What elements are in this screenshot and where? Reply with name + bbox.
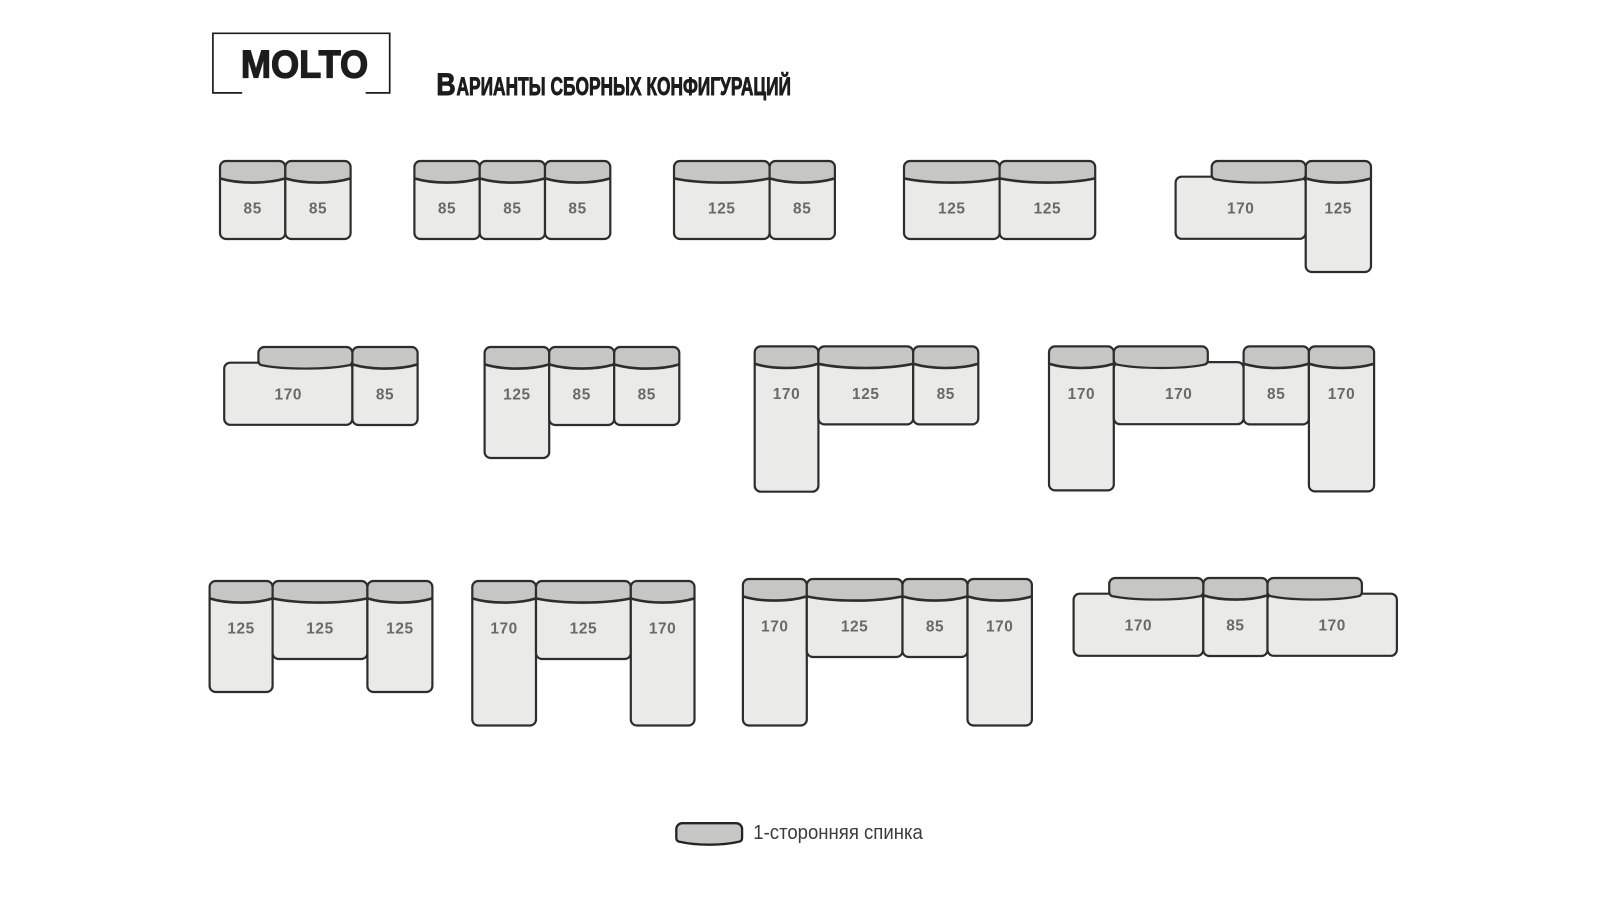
svg-text:125: 125 — [570, 621, 597, 638]
svg-text:1-сторонняя спинка: 1-сторонняя спинка — [753, 821, 923, 844]
svg-text:85: 85 — [638, 387, 656, 404]
svg-text:85: 85 — [926, 619, 944, 636]
svg-text:125: 125 — [227, 621, 254, 638]
svg-text:125: 125 — [938, 201, 965, 218]
svg-text:85: 85 — [1226, 618, 1244, 635]
svg-text:85: 85 — [573, 387, 591, 404]
svg-text:85: 85 — [937, 386, 955, 403]
svg-text:125: 125 — [386, 621, 413, 638]
svg-text:170: 170 — [1125, 618, 1152, 635]
svg-text:170: 170 — [649, 621, 676, 638]
svg-text:85: 85 — [309, 201, 327, 218]
svg-text:170: 170 — [1227, 201, 1254, 218]
svg-text:125: 125 — [503, 387, 530, 404]
svg-text:170: 170 — [1318, 618, 1345, 635]
svg-text:170: 170 — [275, 387, 302, 404]
svg-text:85: 85 — [503, 201, 521, 218]
svg-text:170: 170 — [1328, 386, 1355, 403]
svg-text:125: 125 — [852, 386, 879, 403]
svg-text:АРИАНТЫ СБОРНЫХ КОНФИГУРАЦИЙ: АРИАНТЫ СБОРНЫХ КОНФИГУРАЦИЙ — [457, 71, 792, 101]
svg-text:85: 85 — [1267, 386, 1285, 403]
svg-text:170: 170 — [1068, 386, 1095, 403]
svg-text:125: 125 — [708, 201, 735, 218]
svg-text:85: 85 — [376, 387, 394, 404]
svg-text:125: 125 — [306, 621, 333, 638]
svg-text:170: 170 — [490, 621, 517, 638]
svg-text:170: 170 — [761, 619, 788, 636]
svg-text:85: 85 — [438, 201, 456, 218]
svg-text:125: 125 — [841, 619, 868, 636]
svg-text:85: 85 — [244, 201, 262, 218]
svg-text:MOLTO: MOLTO — [241, 44, 368, 87]
svg-text:В: В — [436, 66, 456, 102]
svg-text:170: 170 — [773, 386, 800, 403]
svg-text:170: 170 — [1165, 386, 1192, 403]
svg-text:85: 85 — [793, 201, 811, 218]
svg-text:125: 125 — [1034, 201, 1061, 218]
svg-text:170: 170 — [986, 619, 1013, 636]
svg-text:125: 125 — [1325, 201, 1352, 218]
svg-text:85: 85 — [568, 201, 586, 218]
